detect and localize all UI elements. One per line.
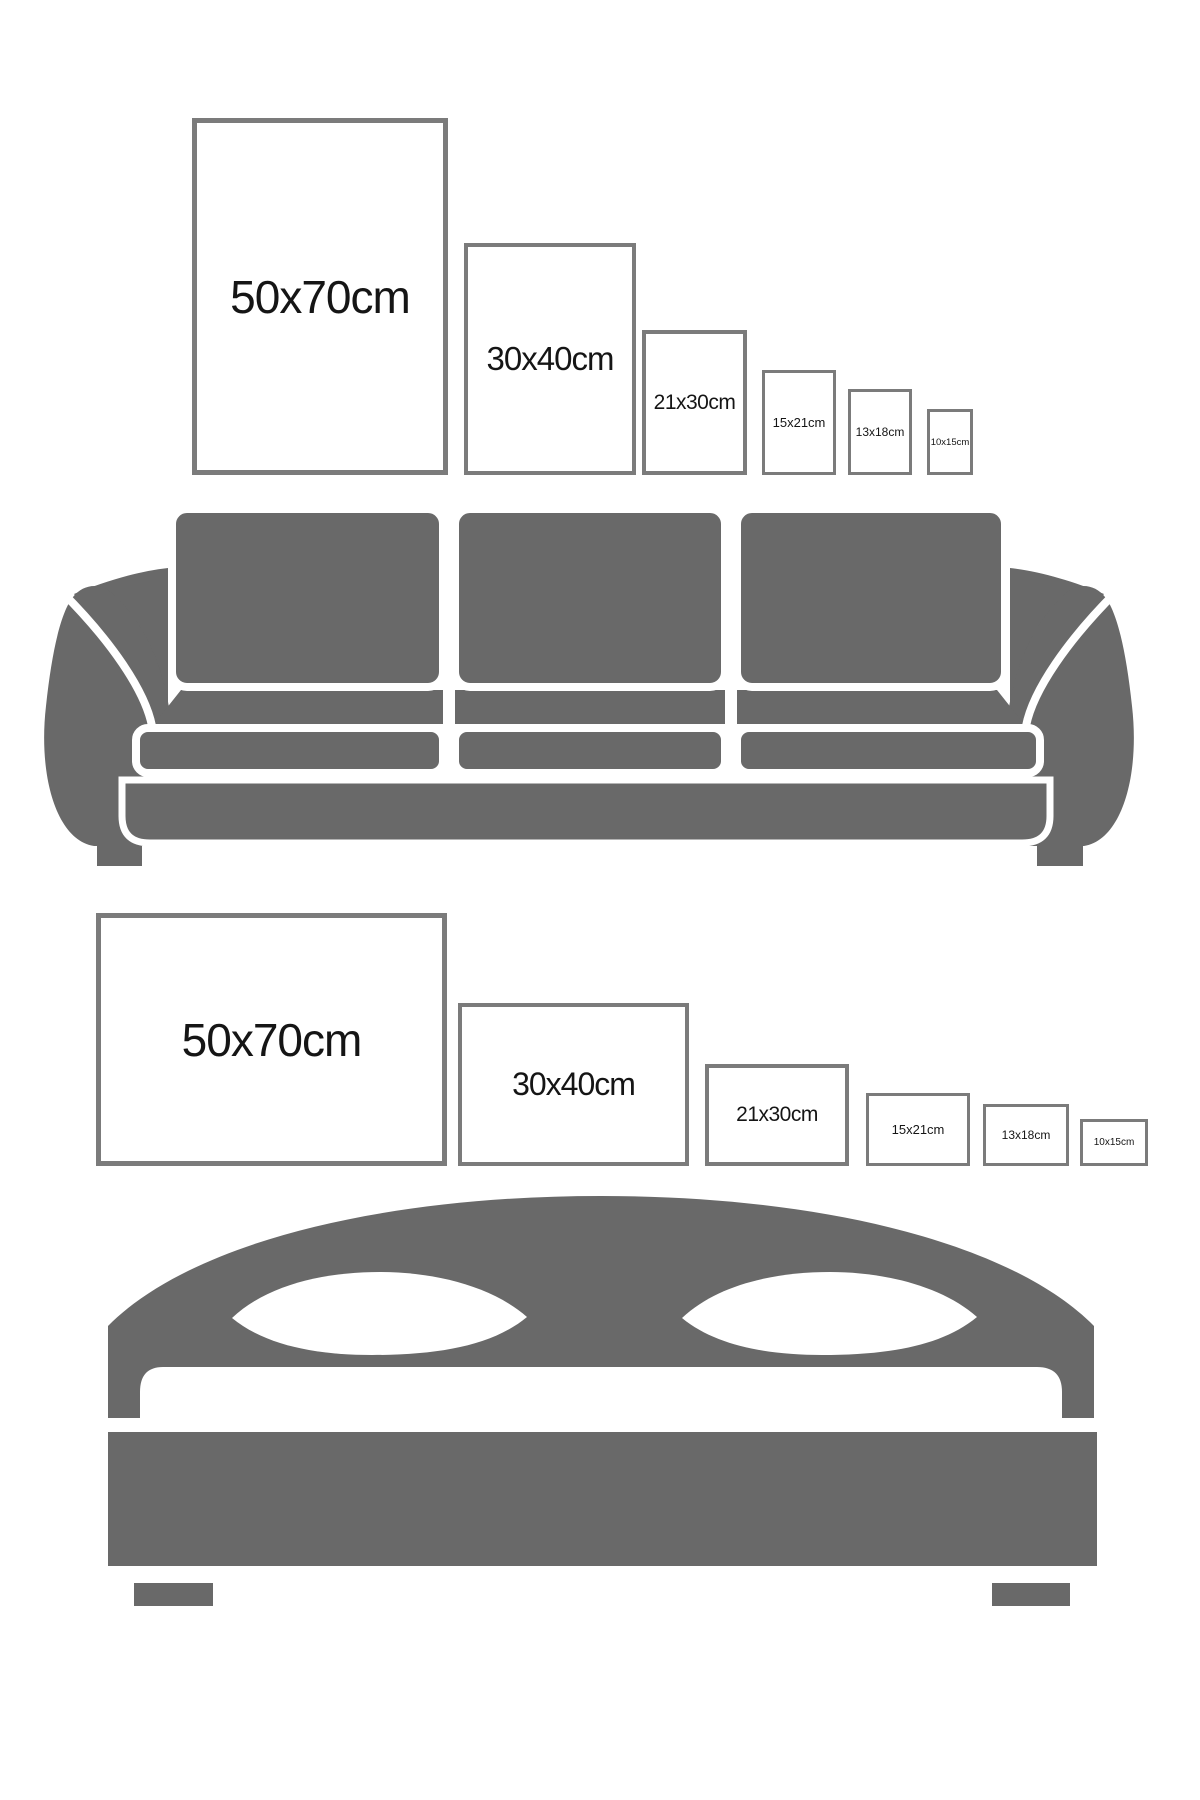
sofa-right-leg [1037, 838, 1083, 866]
size-label: 10x15cm [931, 437, 970, 448]
size-label: 10x15cm [1094, 1137, 1135, 1148]
sofa-deck [154, 690, 1024, 724]
size-label: 21x30cm [736, 1103, 818, 1127]
bed-left-leg [134, 1583, 213, 1606]
size-frame-portrait-15x21: 15x21cm [762, 370, 836, 475]
size-label: 13x18cm [856, 425, 905, 439]
size-label: 50x70cm [230, 270, 410, 324]
sofa-back-cushion [737, 509, 1005, 687]
size-frame-landscape-15x21: 15x21cm [866, 1093, 970, 1166]
size-frame-portrait-21x30: 21x30cm [642, 330, 747, 475]
sofa-illustration [35, 475, 1145, 870]
size-label: 15x21cm [773, 415, 826, 430]
size-frame-landscape-30x40: 30x40cm [458, 1003, 689, 1166]
size-frame-landscape-13x18: 13x18cm [983, 1104, 1069, 1166]
size-frame-landscape-50x70: 50x70cm [96, 913, 447, 1166]
sofa-seat-cushion [455, 728, 725, 773]
size-frame-landscape-10x15: 10x15cm [1080, 1119, 1148, 1166]
size-frame-portrait-13x18: 13x18cm [848, 389, 912, 475]
size-label: 13x18cm [1002, 1128, 1051, 1142]
sofa-back-cushion [172, 509, 443, 687]
sofa-seat-cushion [136, 728, 443, 773]
size-label: 50x70cm [182, 1013, 362, 1067]
bed-right-leg [992, 1583, 1070, 1606]
sofa-back-cushion [455, 509, 725, 687]
sofa-seat-cushion [737, 728, 1040, 773]
size-label: 15x21cm [892, 1122, 945, 1137]
size-label: 30x40cm [487, 340, 614, 378]
size-frame-portrait-30x40: 30x40cm [464, 243, 636, 475]
bed-base [108, 1432, 1097, 1566]
size-frame-portrait-50x70: 50x70cm [192, 118, 448, 475]
size-frame-portrait-10x15: 10x15cm [927, 409, 973, 475]
bed-illustration [100, 1190, 1110, 1612]
sofa-base [122, 780, 1050, 843]
size-label: 21x30cm [654, 391, 736, 415]
size-label: 30x40cm [512, 1066, 635, 1103]
size-frame-landscape-21x30: 21x30cm [705, 1064, 849, 1166]
